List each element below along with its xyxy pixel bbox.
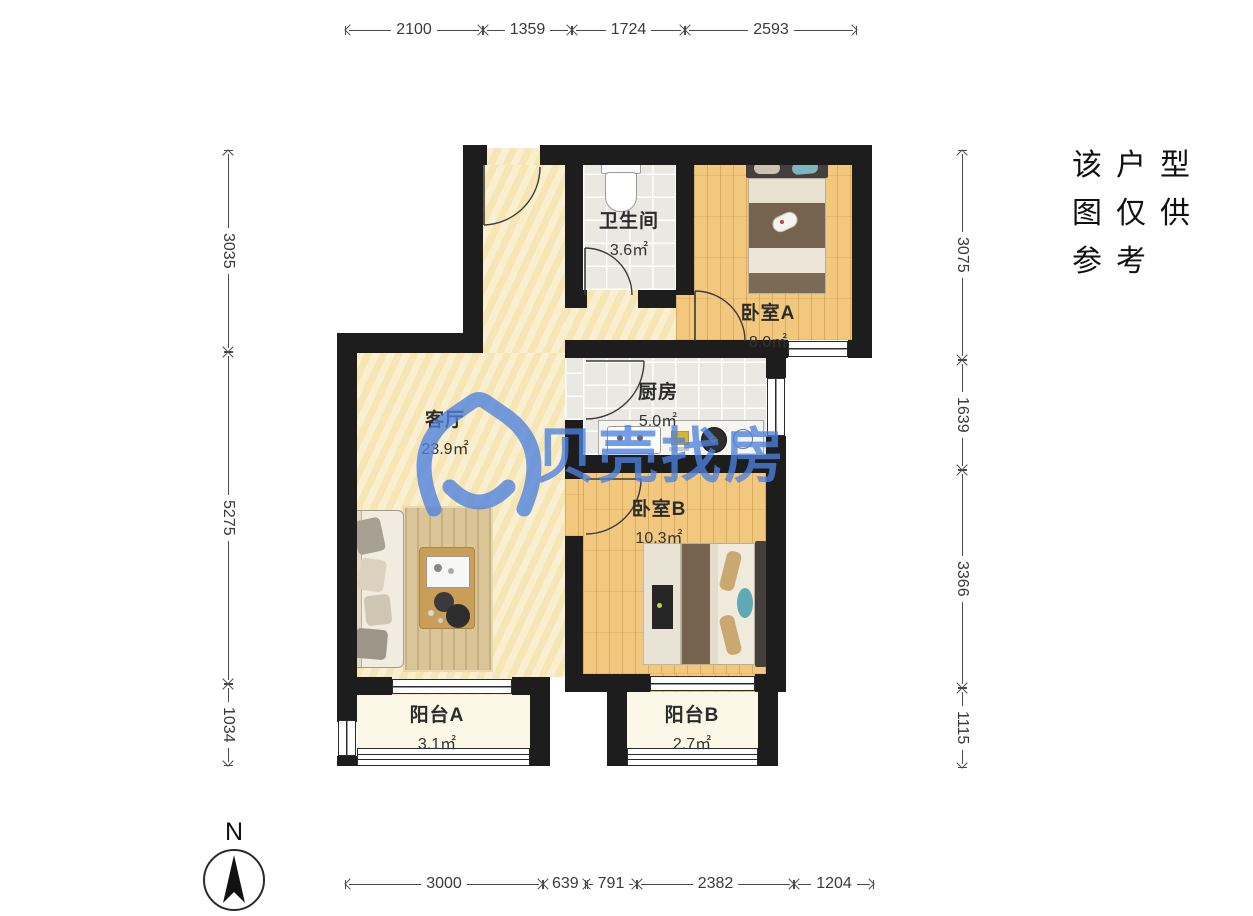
bed-b-group: [643, 541, 767, 667]
dimension-top-4: 2593: [685, 21, 857, 39]
dimension-bottom-2: 639: [543, 875, 585, 893]
tray-cup: [434, 564, 442, 572]
sofa-pillow: [354, 628, 388, 661]
kitchen-door-floor: [565, 358, 583, 420]
dimension-right-3: 3366: [953, 470, 971, 688]
kettle: [446, 604, 470, 628]
room-label-balcony-b: 阳台B 2.7㎡: [665, 700, 720, 754]
wall: [463, 145, 483, 353]
room-name: 卧室B: [632, 494, 687, 521]
balcony-a-side-window: [338, 720, 356, 756]
room-area: 2.7㎡: [665, 730, 720, 754]
room-area: 3.6㎡: [599, 236, 659, 260]
coffee-table: [419, 547, 475, 629]
table-dot: [428, 610, 434, 616]
wall: [565, 536, 583, 692]
room-name: 卧室A: [741, 298, 796, 325]
wall: [852, 145, 872, 358]
floorplan-image: 客厅 23.9㎡ 卫生间 3.6㎡ 卧室A 8.0㎡ 厨房 5.0㎡ 卧室B 1…: [0, 0, 1253, 916]
room-label-bathroom: 卫生间 3.6㎡: [599, 206, 659, 260]
wall: [337, 333, 483, 353]
sink-drain: [617, 435, 623, 441]
wall: [676, 145, 694, 295]
compass-north-label: N: [198, 818, 270, 847]
bed-a-sheet: [749, 179, 825, 203]
wall: [512, 677, 550, 695]
tv-power-dot: [657, 603, 662, 608]
living-room-floor: [487, 148, 540, 165]
wall: [565, 420, 583, 473]
dimension-top-2: 1359: [483, 21, 572, 39]
phone-dot: [780, 220, 784, 224]
tray-cup: [448, 568, 454, 574]
sofa-cushion: [357, 557, 387, 592]
bedroom-a-window: [788, 341, 848, 357]
living-balcony-slider: [392, 679, 512, 694]
room-area: 3.1㎡: [410, 730, 465, 754]
dimension-bottom-5: 1204: [794, 875, 874, 893]
entry-door-arc: [483, 165, 545, 229]
bed-a-blanket: [749, 273, 825, 293]
dimension-bottom-4: 2382: [637, 875, 794, 893]
wall: [565, 455, 786, 473]
room-label-balcony-a: 阳台A 3.1㎡: [410, 700, 465, 754]
compass: N: [198, 818, 270, 911]
dimension-bottom-3: 791: [585, 875, 637, 893]
dimension-bottom-1: 3000: [345, 875, 543, 893]
bed-b-fold: [710, 544, 718, 664]
utensils: [669, 447, 689, 451]
wall: [758, 674, 778, 766]
bed-a: [746, 158, 828, 294]
disclaimer-line: 该户型: [1072, 142, 1204, 190]
sofa-cushion: [364, 594, 393, 627]
dimension-top-1: 2100: [345, 21, 483, 39]
tv: [652, 585, 673, 629]
wall: [337, 756, 357, 766]
sink-drain: [637, 435, 643, 441]
dimension-right-4: 1115: [953, 688, 971, 768]
room-name: 厨房: [638, 377, 678, 404]
dimension-left-1: 3035: [219, 150, 237, 352]
table-dot: [438, 618, 443, 623]
kitchen-counter: [598, 420, 764, 458]
disclaimer-note: 该户型 图仅供 参考: [1072, 142, 1204, 286]
wall: [565, 145, 583, 290]
bed-b-round-cushion: [737, 588, 753, 618]
room-area: 5.0㎡: [638, 407, 678, 431]
disclaimer-line: 参考: [1072, 238, 1204, 286]
kitchen-window: [767, 378, 785, 436]
cutting-board: [671, 431, 689, 445]
dimension-top-3: 1724: [572, 21, 685, 39]
wall: [530, 695, 550, 766]
room-name: 客厅: [421, 405, 468, 432]
room-label-living: 客厅 23.9㎡: [421, 405, 468, 459]
north-arrow-icon: [205, 851, 263, 909]
room-area: 10.3㎡: [632, 524, 687, 548]
bed-a-blanket-stripe: [749, 248, 825, 273]
wall: [540, 145, 872, 165]
wall: [565, 473, 583, 479]
room-label-bedroom-b: 卧室B 10.3㎡: [632, 494, 687, 548]
wall: [337, 695, 357, 722]
bedroom-a-door-floor: [676, 295, 694, 340]
bed-b-blanket: [682, 544, 710, 664]
wall: [638, 290, 676, 308]
disclaimer-line: 图仅供: [1072, 190, 1204, 238]
room-label-bedroom-a: 卧室A 8.0㎡: [741, 298, 796, 352]
dimension-left-3: 1034: [219, 684, 237, 766]
dimension-left-2: 5275: [219, 352, 237, 684]
dimension-right-2: 1639: [953, 360, 971, 470]
stove-burner-center: [710, 436, 717, 443]
dimension-right-1: 3075: [953, 150, 971, 360]
wall: [766, 436, 786, 692]
compass-circle: [203, 849, 265, 911]
room-name: 阳台B: [665, 700, 720, 727]
room-name: 卫生间: [599, 206, 659, 233]
wall: [337, 333, 357, 695]
bedroom-b-balcony-slider: [650, 676, 755, 691]
room-area: 23.9㎡: [421, 435, 468, 459]
stove-dial: [733, 429, 753, 449]
room-label-kitchen: 厨房 5.0㎡: [638, 377, 678, 431]
room-name: 阳台A: [410, 700, 465, 727]
room-area: 8.0㎡: [741, 328, 796, 352]
bedroom-b-door-floor: [565, 477, 583, 536]
wall: [607, 674, 627, 766]
